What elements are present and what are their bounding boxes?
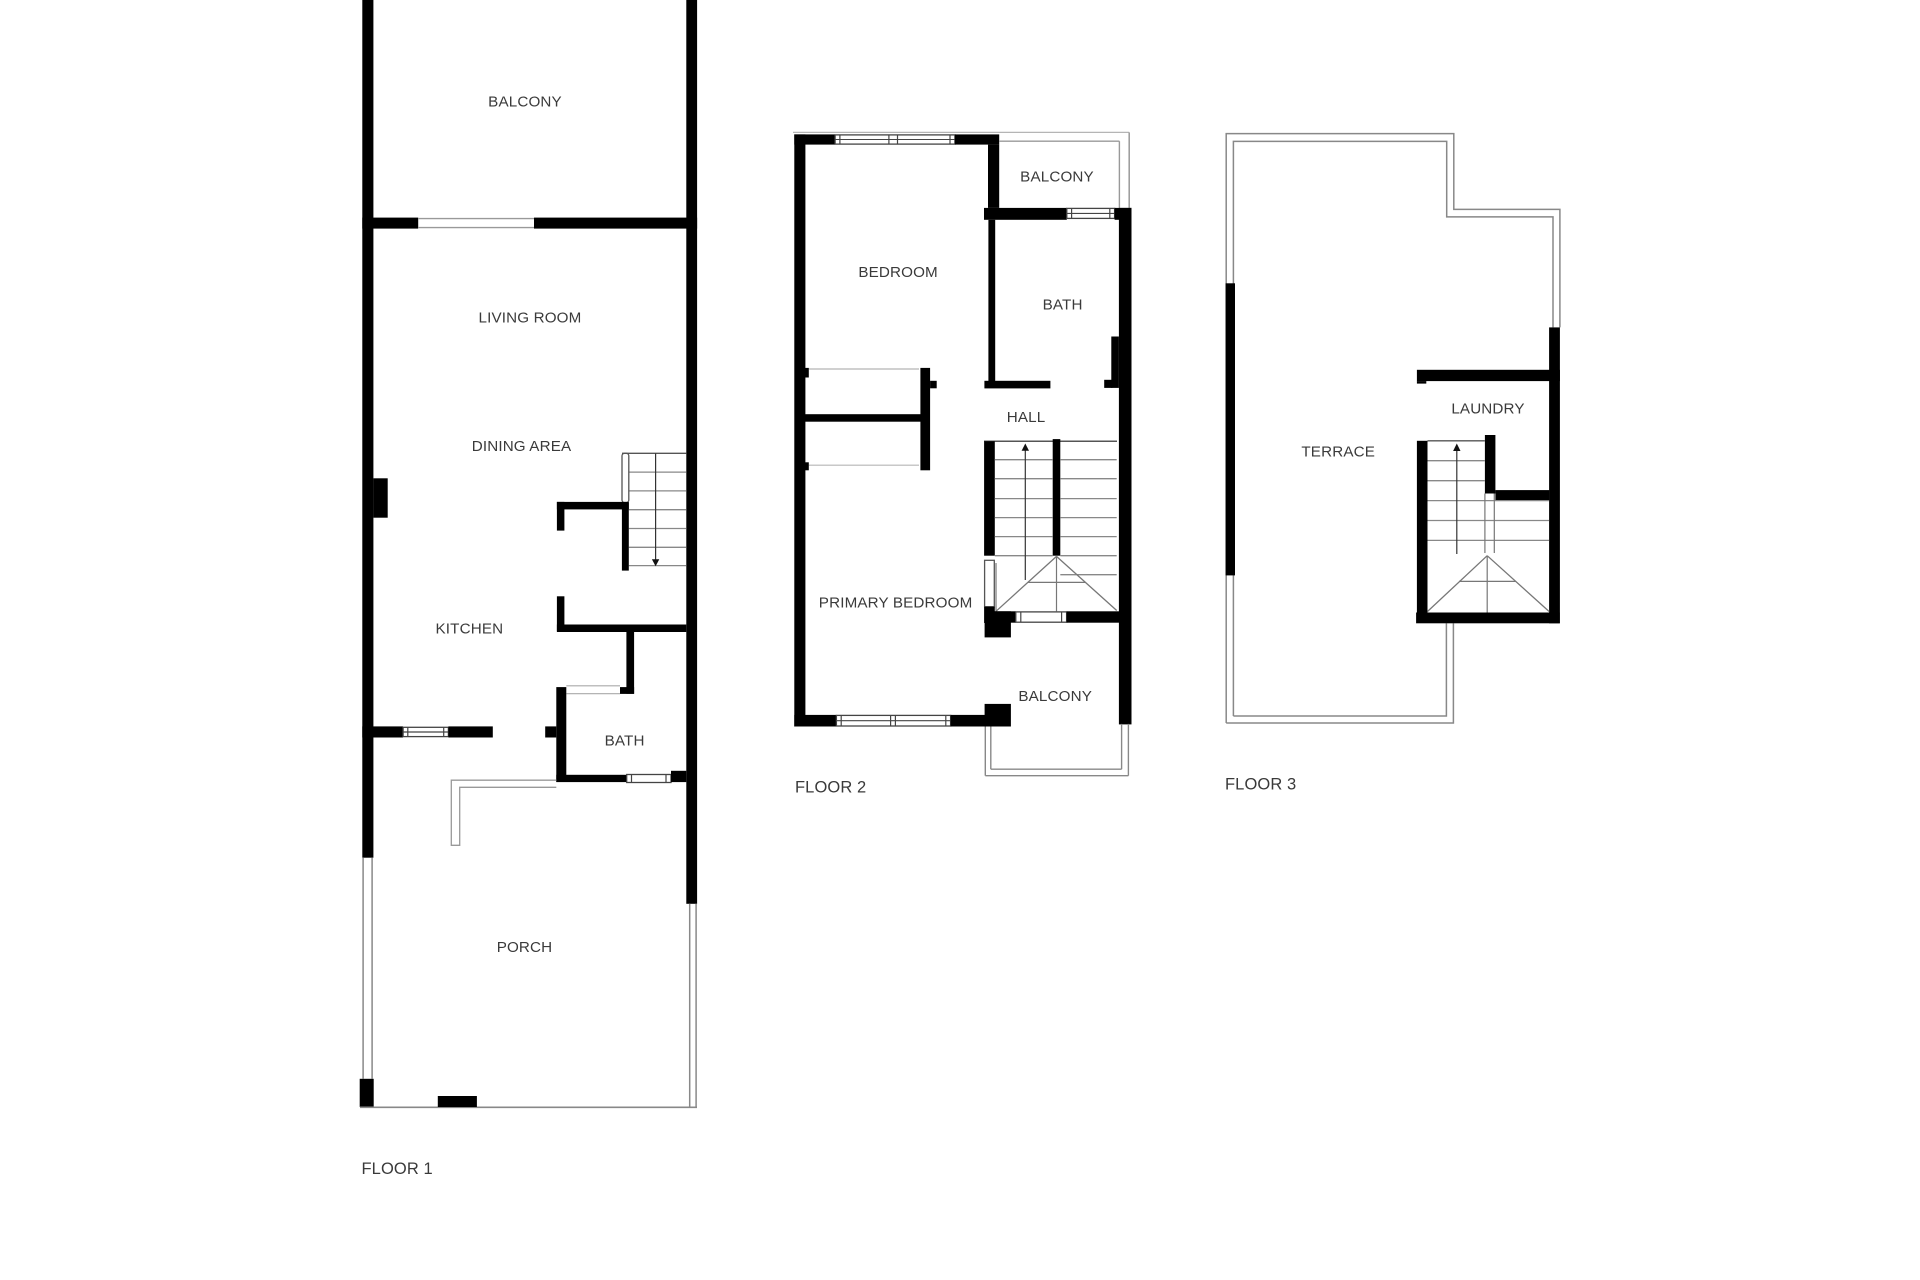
svg-text:FLOOR 1: FLOOR 1	[362, 1160, 433, 1178]
svg-text:BALCONY: BALCONY	[1018, 688, 1092, 705]
svg-text:DINING AREA: DINING AREA	[472, 438, 572, 455]
svg-text:BATH: BATH	[605, 732, 645, 749]
svg-text:BATH: BATH	[1043, 297, 1083, 314]
svg-text:TERRACE: TERRACE	[1301, 444, 1375, 461]
svg-text:LAUNDRY: LAUNDRY	[1451, 401, 1524, 418]
svg-text:BALCONY: BALCONY	[488, 94, 562, 111]
svg-text:KITCHEN: KITCHEN	[436, 621, 504, 638]
svg-text:PORCH: PORCH	[497, 939, 553, 956]
svg-text:BEDROOM: BEDROOM	[858, 264, 938, 281]
svg-text:FLOOR 3: FLOOR 3	[1225, 775, 1296, 793]
svg-text:HALL: HALL	[1007, 409, 1046, 426]
svg-text:LIVING ROOM: LIVING ROOM	[479, 309, 582, 326]
svg-text:BALCONY: BALCONY	[1020, 169, 1094, 186]
svg-text:FLOOR 2: FLOOR 2	[795, 779, 866, 797]
svg-text:PRIMARY BEDROOM: PRIMARY BEDROOM	[819, 595, 973, 612]
